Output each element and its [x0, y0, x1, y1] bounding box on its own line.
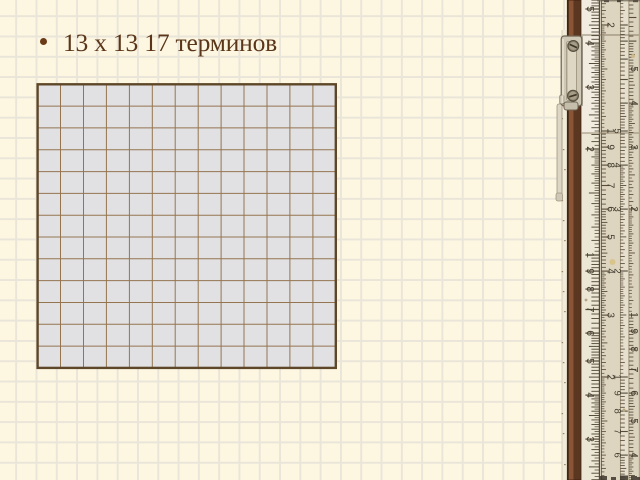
svg-text:2: 2 [611, 268, 622, 273]
svg-text:2: 2 [628, 206, 639, 212]
svg-text:2: 2 [584, 146, 595, 152]
svg-text:3: 3 [604, 312, 615, 318]
svg-text:7: 7 [584, 307, 595, 313]
svg-text:5: 5 [604, 234, 615, 240]
svg-text:8: 8 [584, 286, 595, 292]
svg-text:1: 1 [628, 312, 639, 318]
svg-text:1: 1 [611, 374, 622, 379]
svg-text:4: 4 [584, 392, 595, 398]
svg-text:6: 6 [628, 390, 639, 396]
svg-text:2: 2 [604, 22, 615, 28]
svg-text:5: 5 [628, 66, 639, 72]
svg-text:4: 4 [628, 452, 639, 458]
svg-text:9: 9 [604, 144, 615, 150]
svg-text:6: 6 [611, 452, 622, 457]
svg-text:1: 1 [584, 252, 595, 258]
svg-text:4: 4 [584, 40, 595, 46]
svg-text:8: 8 [611, 408, 622, 413]
svg-text:3: 3 [611, 206, 622, 211]
svg-text:4: 4 [611, 162, 622, 167]
svg-text:5: 5 [628, 418, 639, 424]
svg-text:6: 6 [584, 330, 595, 336]
svg-text:5: 5 [584, 358, 595, 364]
svg-text:5: 5 [584, 6, 595, 12]
svg-text:5: 5 [611, 128, 622, 133]
svg-text:3: 3 [628, 144, 639, 150]
svg-text:4: 4 [628, 100, 639, 106]
svg-text:3: 3 [584, 84, 595, 90]
svg-text:7: 7 [628, 367, 639, 373]
svg-text:7: 7 [611, 429, 622, 434]
svg-text:8: 8 [628, 346, 639, 352]
svg-text:9: 9 [584, 268, 595, 274]
svg-text:9: 9 [628, 328, 639, 334]
svg-text:9: 9 [611, 390, 622, 395]
svg-text:7: 7 [604, 183, 615, 189]
svg-text:3: 3 [584, 436, 595, 442]
